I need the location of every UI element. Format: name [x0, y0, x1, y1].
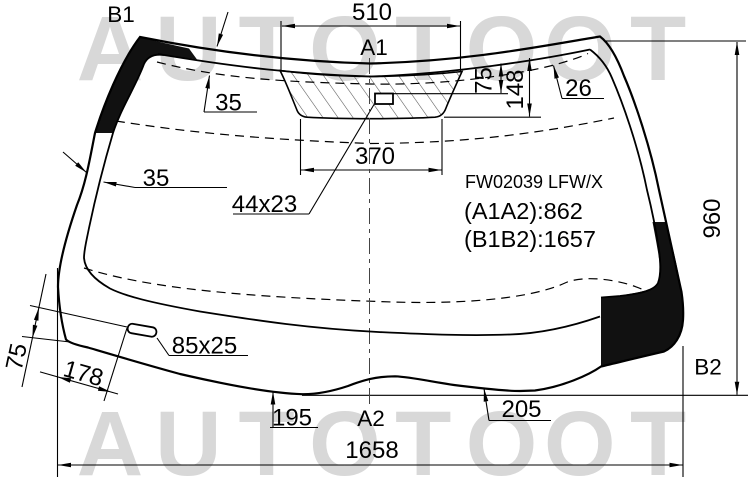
svg-text:148: 148	[502, 69, 529, 109]
svg-text:T: T	[395, 393, 451, 480]
svg-text:U: U	[155, 393, 221, 480]
svg-text:T: T	[630, 393, 686, 480]
svg-text:26: 26	[565, 75, 592, 102]
svg-text:195: 195	[272, 405, 312, 432]
svg-text:44x23: 44x23	[232, 191, 297, 218]
svg-text:1658: 1658	[345, 437, 398, 464]
svg-text:85x25: 85x25	[172, 333, 237, 360]
svg-text:510: 510	[352, 0, 392, 26]
svg-text:205: 205	[501, 396, 541, 423]
svg-text:(B1B2):1657: (B1B2):1657	[464, 226, 596, 252]
svg-text:960: 960	[699, 198, 726, 238]
svg-text:35: 35	[215, 90, 242, 117]
svg-text:A: A	[77, 393, 143, 480]
svg-text:FW02039 LFW/X: FW02039 LFW/X	[465, 172, 603, 192]
svg-text:(A1A2):862: (A1A2):862	[464, 198, 583, 224]
svg-text:370: 370	[355, 143, 395, 170]
svg-text:B2: B2	[694, 355, 722, 380]
svg-text:O: O	[544, 393, 616, 480]
svg-text:35: 35	[143, 165, 170, 192]
svg-text:T: T	[630, 0, 686, 100]
svg-text:B1: B1	[107, 2, 135, 27]
svg-text:75: 75	[1, 341, 33, 373]
svg-text:A1: A1	[360, 35, 388, 60]
svg-text:A2: A2	[357, 406, 385, 431]
svg-text:75: 75	[470, 67, 497, 94]
